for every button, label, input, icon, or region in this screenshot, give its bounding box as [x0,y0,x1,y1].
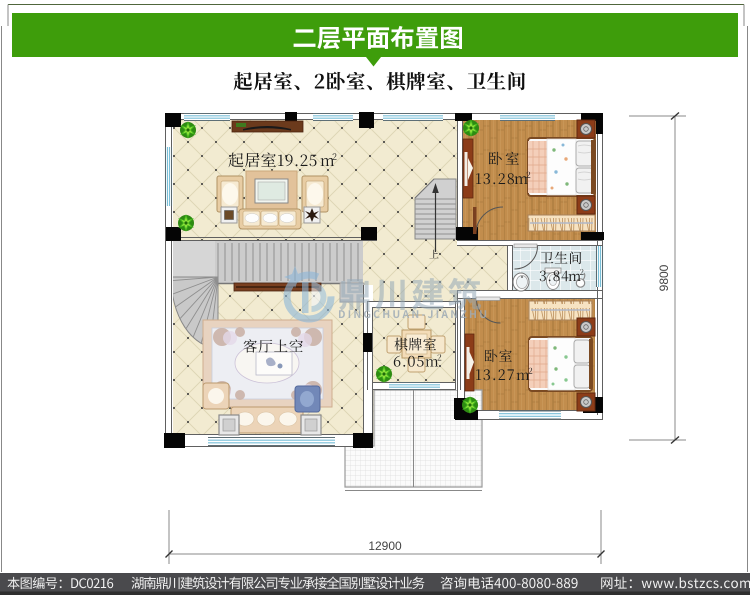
svg-text:12900: 12900 [368,539,402,553]
svg-text:9800: 9800 [657,264,671,291]
